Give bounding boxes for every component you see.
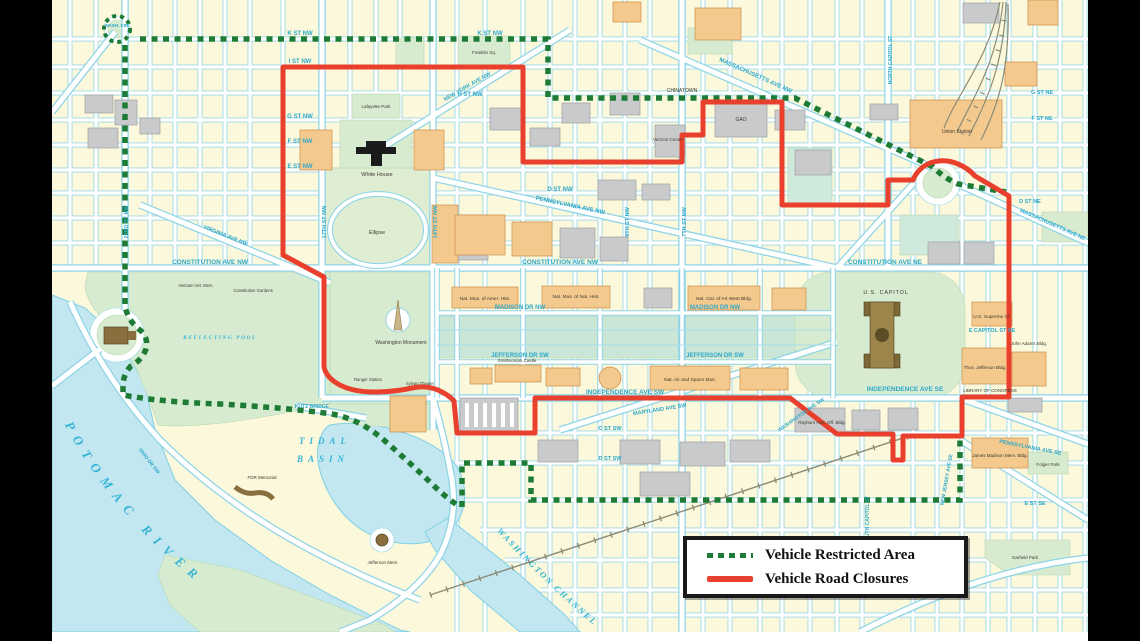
mall-panels	[437, 316, 833, 358]
legend-row-restricted: Vehicle Restricted Area	[707, 547, 964, 564]
map-label-jefferson-mem-: Jefferson Mem.	[368, 560, 399, 565]
map-label-independence-ave-se: INDEPENDENCE AVE SE	[867, 386, 944, 393]
legend-row-closures: Vehicle Road Closures	[707, 571, 964, 588]
restricted-area-dash-swatch	[707, 553, 753, 558]
map-label-tidal: TIDAL	[299, 436, 351, 446]
map-label-9th-st-nw: 9TH ST NW	[625, 206, 631, 236]
map-label-basin: BASIN	[296, 454, 349, 464]
map-label-u-s-capitol: U.S. CAPITOL	[863, 290, 908, 296]
letterbox-bar-left	[0, 0, 52, 641]
map-label-nat-mus-of-nat-hist-: Nat. Mus. of Nat. Hist.	[553, 294, 600, 300]
map-label-james-madison-mem-bldg-: James Madison Mem. Bldg.	[972, 453, 1028, 458]
map-label-nat-air-and-space-mus-: Nat. Air and Space Mus.	[664, 377, 716, 383]
map-label-k-st-nw: K ST NW	[477, 31, 503, 37]
map-label-f-st-ne: F ST NE	[1031, 116, 1052, 122]
map-label-e-st-nw: E ST NW	[288, 164, 313, 170]
map-screenshot: K ST NWK ST NWI ST NWH ST NWG ST NWF ST …	[0, 0, 1140, 641]
map-label-g-st-nw: G ST NW	[287, 114, 313, 120]
map-label-constitution-ave-ne: CONSTITUTION AVE NE	[848, 259, 923, 266]
map-label-14th-st-nw: 14TH ST NW	[433, 205, 439, 239]
map-label-vietnam-vet-mem-: Vietnam Vet. Mem.	[178, 283, 213, 288]
map-label-gao: GAO	[735, 117, 746, 123]
map-label-7th-st-nw: 7TH ST NW	[682, 206, 688, 236]
map-label-library-of-congress: LIBRARY OF CONGRESS	[963, 388, 1017, 393]
map-label-verizon-center: Verizon Center	[653, 137, 683, 142]
map-label-e-st-se: E ST SE	[1024, 501, 1045, 507]
map-label-constitution-ave-nw: CONSTITUTION AVE NW	[172, 259, 249, 266]
map-label-d-st-nw: D ST NW	[547, 187, 573, 193]
map-label-union-station: Union Station	[942, 129, 972, 135]
map-label-fdr-memorial: FDR Memorial	[247, 475, 276, 480]
map-label-thos-jefferson-bldg-: Thos. Jefferson Bldg.	[964, 365, 1006, 370]
map-label-white-house: White House	[361, 172, 393, 178]
map-label-madison-dr-nw: MADISON DR NW	[690, 305, 741, 311]
map-label-chinatown: CHINATOWN	[667, 88, 698, 94]
map-label-john-adams-bldg-: John Adams Bldg.	[1011, 341, 1047, 346]
map-label-constitution-ave-nw: CONSTITUTION AVE NW	[522, 259, 599, 266]
bottom-white-strip	[52, 632, 1088, 641]
map-label-nat-mus-of-amer-hist-: Nat. Mus. of Amer. Hist.	[460, 296, 510, 302]
map-label-f-st-nw: F ST NW	[288, 139, 313, 145]
map-label-rayburn-hse-off-bldg-: Rayburn Hse. Off. Bldg.	[798, 420, 845, 425]
map-label-franklin-sq-: Franklin Sq.	[472, 50, 496, 55]
map-label-17th-st-nw: 17TH ST NW	[322, 205, 328, 239]
map-label-washington-monument: Washington Monument	[375, 340, 427, 346]
map-label-u-s-supreme-ct-: U.S. Supreme Ct.	[973, 314, 1011, 320]
legend-label-restricted: Vehicle Restricted Area	[765, 547, 915, 564]
legend-label-closures: Vehicle Road Closures	[765, 571, 908, 588]
map-label-c-st-sw: C ST SW	[599, 426, 623, 432]
map-label-23rd-st-nw: 23RD ST NW	[124, 205, 130, 239]
map-label-independence-ave-sw: INDEPENDENCE AVE SW	[586, 389, 665, 396]
map-label-folger-park: Folger Park	[1036, 462, 1060, 467]
letterbox-bar-right	[1088, 0, 1140, 641]
map-label-kutz-bridge: KUTZ BRIDGE	[295, 404, 330, 410]
road-closures-solid-swatch	[707, 576, 753, 582]
map-label-i-st-nw: I ST NW	[289, 59, 312, 65]
map-label-jefferson-dr-sw: JEFFERSON DR SW	[686, 353, 744, 359]
map-label-wash-cir-: WASH. CIR.	[104, 23, 129, 28]
map-label-sylvan-theater: Sylvan Theater	[406, 381, 435, 386]
map-label-d-st-ne: D ST NE	[1019, 199, 1041, 205]
map-label-d-st-sw: D ST SW	[599, 456, 623, 462]
map-label-madison-dr-nw: MADISON DR NW	[495, 305, 546, 311]
map-label-ellipse: Ellipse	[369, 230, 385, 236]
bureau-engraving-building	[460, 398, 518, 432]
map-label-g-st-ne: G ST NE	[1031, 90, 1053, 96]
map-label-nat-gal-of-art-west-bldg-: Nat. Gal. of Art West Bldg.	[696, 296, 752, 302]
map-label-ranger-station: Ranger Station	[354, 377, 383, 382]
map-label-lafayette-park: Lafayette Park	[361, 104, 391, 109]
map-label-constitution-gardens: Constitution Gardens	[233, 288, 272, 293]
map-label-north-capitol-st: NORTH CAPITOL ST	[888, 36, 894, 85]
map-label-garfield-park: Garfield Park	[1012, 555, 1039, 560]
map-label-k-st-nw: K ST NW	[287, 31, 313, 37]
jefferson-memorial-icon	[376, 534, 388, 546]
mcpherson-square	[396, 38, 424, 66]
map-label-reflecting-pool: REFLECTING POOL	[182, 335, 257, 341]
map-label-smithsonian-castle: Smithsonian Castle	[498, 358, 537, 363]
map-label-e-capitol-st-se: E CAPITOL ST SE	[969, 328, 1016, 334]
legend-box: Vehicle Restricted Area Vehicle Road Clo…	[683, 536, 968, 598]
